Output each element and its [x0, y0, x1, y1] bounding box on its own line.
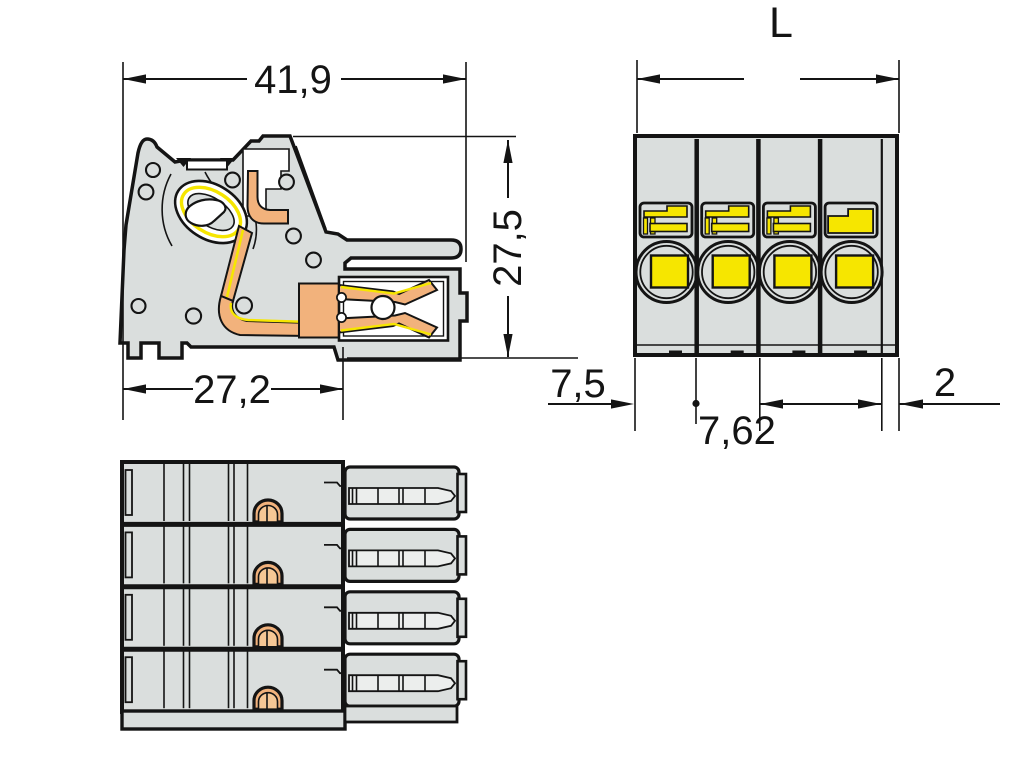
dim-end-plate: 2: [882, 358, 1000, 431]
front-view: L 7,5 7,62 2: [548, 0, 1000, 453]
marker-slot: [187, 161, 227, 170]
dim-label-41-9: 41,9: [254, 58, 332, 102]
dim-label-L: L: [769, 0, 793, 47]
bottom-view: [122, 462, 466, 729]
connector-dimensional-drawing: 41,9 27,5 27,2: [0, 0, 1027, 773]
dim-label-2: 2: [934, 361, 956, 405]
copper-block: [299, 284, 339, 338]
dim-label-27-5: 27,5: [486, 209, 530, 287]
side-section-view: 41,9 27,5 27,2: [120, 58, 578, 420]
dim-pole-pitch: 7,62: [692, 358, 881, 453]
base-wall-extension: [345, 706, 457, 722]
test-port-hole: [372, 296, 395, 319]
dim-label-7-62: 7,62: [698, 409, 776, 453]
dim-total-length: L: [637, 0, 899, 133]
contact-chamber: [337, 277, 448, 341]
dim-label-7-5: 7,5: [550, 362, 606, 406]
dim-label-27-2: 27,2: [193, 368, 271, 412]
dim-edge-offset: 7,5: [548, 358, 635, 431]
dim-dot-terminator: [692, 400, 699, 407]
base-wall: [122, 711, 345, 729]
dim-housing-width: 27,2: [123, 347, 343, 420]
front-housing: [635, 136, 897, 355]
technical-drawing-page: 41,9 27,5 27,2: [0, 0, 1027, 773]
